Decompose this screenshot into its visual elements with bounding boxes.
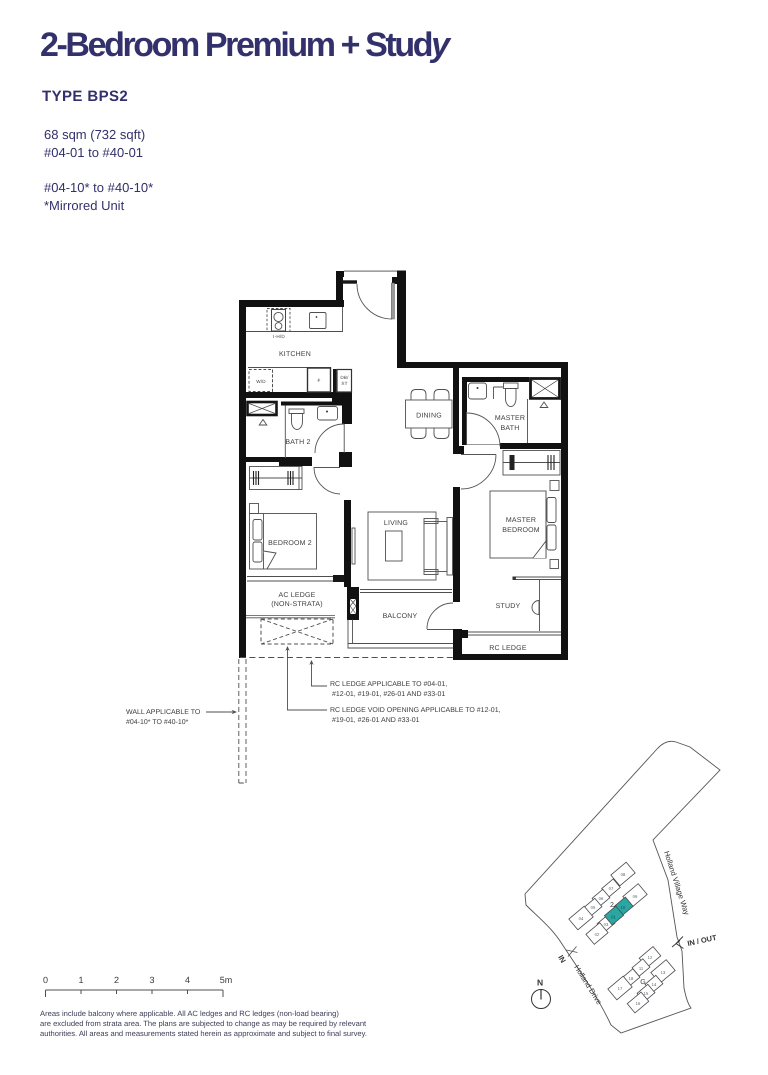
svg-text:18: 18 [629,976,634,981]
svg-text:14: 14 [652,982,657,987]
svg-text:4: 4 [185,975,190,985]
svg-text:05: 05 [591,905,596,910]
svg-text:RC LEDGE VOID OPENING APPLICAB: RC LEDGE VOID OPENING APPLICABLE TO #12-… [330,707,501,714]
svg-text:MASTER: MASTER [506,517,536,524]
svg-text:03: 03 [604,922,609,927]
svg-text:Holland Village Way: Holland Village Way [662,850,691,916]
svg-text:02: 02 [595,932,600,937]
svg-text:RC LEDGE APPLICABLE TO #04-01,: RC LEDGE APPLICABLE TO #04-01, [330,681,447,688]
svg-text:AC LEDGE: AC LEDGE [279,592,316,599]
svg-text:BATH: BATH [501,425,520,432]
svg-text:0: 0 [43,975,48,985]
svg-text:BEDROOM 2: BEDROOM 2 [268,540,312,547]
svg-text:07: 07 [609,886,614,891]
svg-text:#12-01, #19-01, #26-01 AND #33: #12-01, #19-01, #26-01 AND #33-01 [332,691,445,698]
svg-text:MASTER: MASTER [495,415,525,422]
svg-text:KITCHEN: KITCHEN [279,351,311,358]
svg-text:09: 09 [633,894,638,899]
svg-text:I-H/D: I-H/D [273,334,285,339]
svg-text:2: 2 [610,902,614,909]
svg-text:G: G [640,979,645,986]
svg-text:16: 16 [636,1001,641,1006]
svg-text:Holland Drive: Holland Drive [572,963,603,1006]
svg-text:01: 01 [611,915,616,920]
svg-text:IN / OUT: IN / OUT [687,933,718,948]
svg-text:IN: IN [556,954,568,965]
svg-text:W/D: W/D [256,379,266,384]
svg-text:11: 11 [639,966,644,971]
svg-text:F: F [317,378,320,383]
svg-text:12: 12 [648,955,653,960]
svg-text:5m: 5m [220,975,233,985]
svg-text:N: N [537,978,543,988]
svg-text:2: 2 [114,975,119,985]
svg-text:ST: ST [341,381,347,386]
svg-text:15: 15 [644,991,649,996]
svg-text:STUDY: STUDY [496,603,521,610]
svg-text:04: 04 [579,916,584,921]
svg-text:BALCONY: BALCONY [383,613,418,620]
svg-text:BATH 2: BATH 2 [285,439,310,446]
svg-text:LIVING: LIVING [384,520,408,527]
svg-text:08: 08 [621,872,626,877]
svg-text:3: 3 [149,975,154,985]
svg-text:DB/: DB/ [340,375,349,380]
svg-text:#19-01, #26-01 AND #33-01: #19-01, #26-01 AND #33-01 [332,717,420,724]
svg-text:(NON-STRATA): (NON-STRATA) [271,600,323,608]
svg-text:17: 17 [618,986,623,991]
svg-text:BEDROOM: BEDROOM [502,527,540,534]
svg-text:#04-10* TO #40-10*: #04-10* TO #40-10* [126,719,189,726]
svg-text:WALL APPLICABLE TO: WALL APPLICABLE TO [126,709,201,716]
svg-text:1: 1 [78,975,83,985]
svg-text:10: 10 [621,905,626,910]
svg-text:DINING: DINING [416,413,442,420]
svg-text:06: 06 [599,896,604,901]
svg-text:RC LEDGE: RC LEDGE [489,645,527,652]
svg-text:13: 13 [661,970,666,975]
